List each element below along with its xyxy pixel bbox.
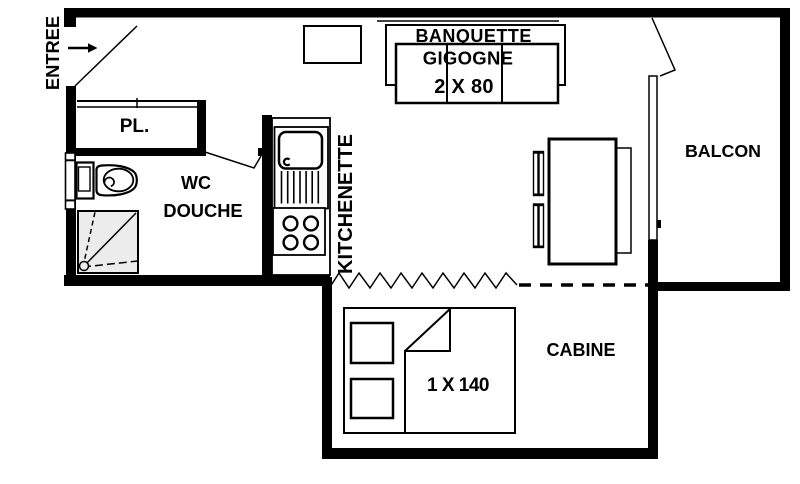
svg-text:1 X 140: 1 X 140 — [427, 375, 489, 396]
svg-text:ENTREE: ENTREE — [42, 16, 63, 90]
svg-text:KITCHENETTE: KITCHENETTE — [335, 134, 357, 274]
svg-text:CABINE: CABINE — [546, 340, 615, 360]
svg-text:DOUCHE: DOUCHE — [163, 200, 242, 221]
svg-text:WC: WC — [181, 173, 211, 193]
svg-text:GIGOGNE: GIGOGNE — [423, 48, 514, 69]
svg-text:BALCON: BALCON — [685, 141, 761, 161]
svg-text:2 X 80: 2 X 80 — [434, 76, 494, 98]
svg-text:PL.: PL. — [120, 116, 150, 137]
